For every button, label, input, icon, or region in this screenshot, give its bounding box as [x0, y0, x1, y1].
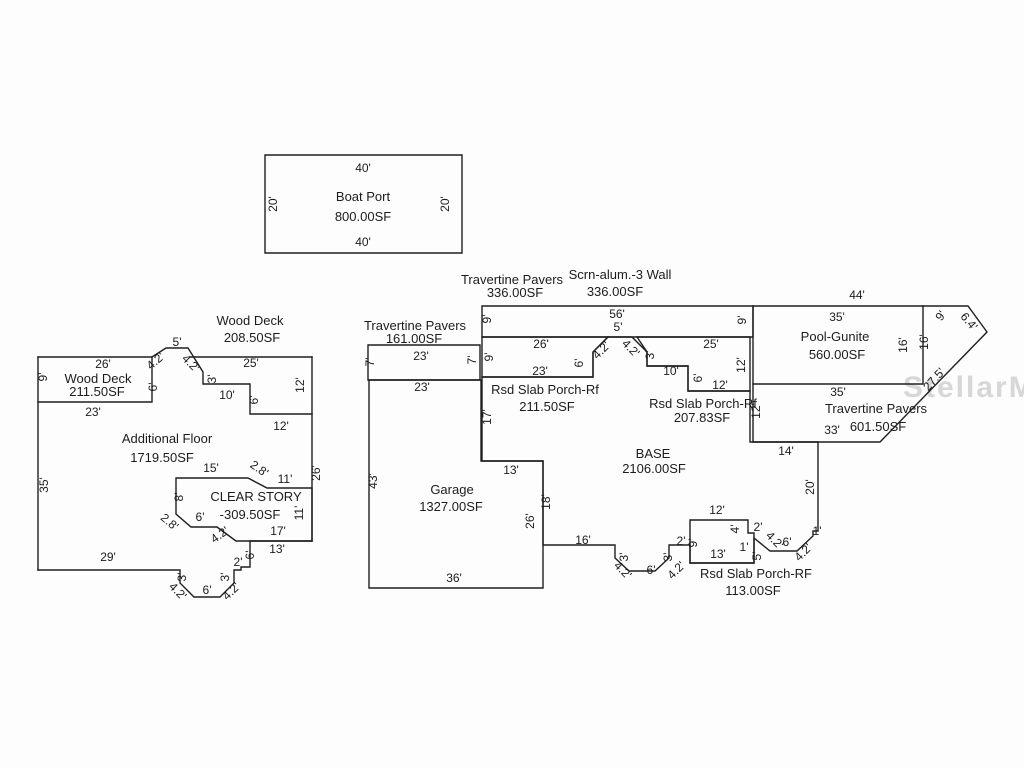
area-label: Wood Deck: [217, 313, 284, 328]
area-label: 800.00SF: [335, 209, 391, 224]
area-label: Garage: [430, 482, 473, 497]
dimension-label: 4.2': [220, 580, 243, 603]
left-building-peak-and-steps: [152, 348, 312, 414]
dimension-label: 9': [735, 316, 749, 325]
dimension-label: 8': [172, 493, 186, 502]
area-label: 336.00SF: [487, 285, 543, 300]
dimension-label: 20': [438, 196, 452, 212]
dimension-label: 3': [643, 351, 657, 360]
dimension-label: 17': [270, 524, 286, 538]
area-label: Rsd Slab Porch-RF: [700, 566, 812, 581]
dimension-label: 4': [728, 525, 742, 534]
dimension-label: 10': [663, 364, 679, 378]
dimension-label: 13': [269, 542, 285, 556]
dimension-label: 40': [355, 235, 371, 249]
dimension-label: 6': [146, 383, 160, 392]
dimension-label: 16': [917, 334, 931, 350]
dimension-label: 29': [100, 550, 116, 564]
dimension-label: 5': [614, 320, 623, 334]
dimension-label: 4.2': [792, 541, 815, 564]
dimension-label: 6': [243, 551, 257, 560]
dimension-label: 20': [266, 196, 280, 212]
area-label: Pool-Gunite: [801, 329, 870, 344]
dimension-label: 3': [218, 573, 232, 582]
dimension-label: 6': [247, 396, 261, 405]
dimension-label: 11': [278, 472, 293, 486]
dimension-label: 12': [293, 377, 307, 393]
area-label: 1719.50SF: [130, 450, 194, 465]
dimension-label: 23': [414, 380, 430, 394]
dimension-label: 14': [778, 444, 794, 458]
dimension-label: 9': [36, 373, 50, 382]
dimension-label: 20': [803, 479, 817, 495]
dimension-label: 40': [355, 161, 371, 175]
dimension-label: 7': [363, 358, 377, 367]
dimension-label: 4.2': [144, 349, 168, 372]
dimension-label: 11': [292, 506, 306, 521]
area-label: CLEAR STORY: [210, 489, 302, 504]
label-group-porches: 26'9'6'4.2'23'Rsd Slab Porch-Rf211.50SF4…: [482, 337, 757, 425]
dimension-label: 1': [740, 540, 749, 554]
dimension-label: 1': [813, 524, 822, 538]
dimension-label: 26': [309, 465, 323, 481]
dimension-label: 4.2': [179, 352, 202, 375]
dimension-label: 9': [482, 353, 496, 362]
area-label: 161.00SF: [386, 331, 442, 346]
area-label: Travertine Pavers: [825, 401, 928, 416]
dimension-label: 16': [575, 533, 591, 547]
dimension-label: 44': [849, 288, 865, 302]
dimension-label: 9': [686, 539, 700, 548]
area-label: Boat Port: [336, 189, 391, 204]
area-label: 211.50SF: [519, 399, 574, 414]
area-label: -309.50SF: [220, 507, 281, 522]
dimension-label: 12': [734, 357, 748, 373]
label-group-screen-wall-strip: Travertine Pavers336.00SFScrn-alum.-3 Wa…: [461, 267, 749, 334]
labels-layer: 40'Boat Port800.00SF40'20'20'Wood Deck20…: [36, 161, 981, 603]
area-label: 336.00SF: [587, 284, 643, 299]
area-label: Scrn-alum.-3 Wall: [569, 267, 672, 282]
dimension-label: 12': [273, 419, 289, 433]
dimension-label: 6.4': [958, 310, 981, 334]
area-label: 560.00SF: [809, 347, 865, 362]
dimension-label: 2': [754, 520, 763, 534]
area-label: 207.83SF: [674, 410, 730, 425]
area-label: BASE: [636, 446, 671, 461]
label-group-base: BASE2106.00SF17'14'20'12'1'4.2'6'4.2'2'4…: [480, 403, 821, 598]
dimension-label: 3': [661, 553, 675, 562]
dimension-label: 56': [609, 307, 625, 321]
area-label: 113.00SF: [725, 583, 780, 598]
dimension-label: 35': [37, 477, 51, 493]
area-label: Rsd Slab Porch-Rf: [649, 396, 757, 411]
area-label: 208.50SF: [224, 330, 280, 345]
dimension-label: 25': [703, 337, 719, 351]
dimension-label: 16': [896, 337, 910, 353]
dimension-label: 26': [533, 337, 549, 351]
dimension-label: 33': [824, 423, 840, 437]
label-group-boat-port: 40'Boat Port800.00SF40'20'20': [266, 161, 452, 249]
dimension-label: 23': [413, 349, 429, 363]
dimension-label: 6': [572, 359, 586, 368]
dimension-label: 5': [173, 335, 182, 349]
dimension-label: 6': [203, 583, 212, 597]
dimension-label: 17': [480, 409, 494, 425]
floor-plan-sketch: StellarMLS: [0, 0, 1024, 768]
dimension-label: 36': [446, 571, 462, 585]
dimension-label: 43': [366, 473, 380, 489]
dimension-label: 23': [532, 364, 548, 378]
dimension-label: 18': [539, 494, 553, 510]
dimension-label: 26': [95, 357, 111, 371]
area-label: 601.50SF: [850, 419, 906, 434]
area-label: 1327.00SF: [419, 499, 483, 514]
dimension-label: 12': [709, 503, 725, 517]
dimension-label: 7': [465, 356, 479, 365]
dimension-label: 6': [691, 374, 705, 383]
area-label: 211.50SF: [69, 384, 124, 399]
dimension-label: 2': [234, 555, 243, 569]
dimension-label: 4.2': [166, 580, 189, 603]
dimension-label: 5': [750, 552, 764, 561]
dimension-label: 9': [932, 308, 949, 323]
dimension-label: 13': [710, 547, 726, 561]
dimension-label: 23': [85, 405, 101, 419]
area-label: 2106.00SF: [622, 461, 686, 476]
dimension-label: 35': [829, 310, 845, 324]
dimension-label: 10': [219, 388, 235, 402]
outline-layer: [38, 155, 987, 597]
area-label: Additional Floor: [122, 431, 213, 446]
dimension-label: 6': [196, 510, 205, 524]
dimension-label: 3': [617, 553, 631, 562]
dimension-label: 13': [503, 463, 519, 477]
dimension-label: 6': [647, 563, 656, 577]
dimension-label: 12': [712, 378, 728, 392]
floor-plan-svg: StellarMLS: [0, 0, 1024, 768]
dimension-label: 9': [480, 315, 494, 324]
dimension-label: 25': [243, 356, 259, 370]
dimension-label: 2.8': [158, 510, 182, 533]
dimension-label: 12': [749, 403, 763, 419]
label-group-pool: 44'35'Pool-Gunite560.00SF16'16'9'6.4'27.…: [801, 288, 981, 437]
dimension-label: 26': [523, 513, 537, 529]
dimension-label: 35': [830, 385, 846, 399]
dimension-label: 15': [203, 461, 219, 475]
dimension-label: 3': [205, 375, 219, 384]
dimension-label: 2': [677, 534, 686, 548]
dimension-label: 2.8': [248, 458, 272, 480]
area-label: Rsd Slab Porch-Rf: [491, 382, 599, 397]
